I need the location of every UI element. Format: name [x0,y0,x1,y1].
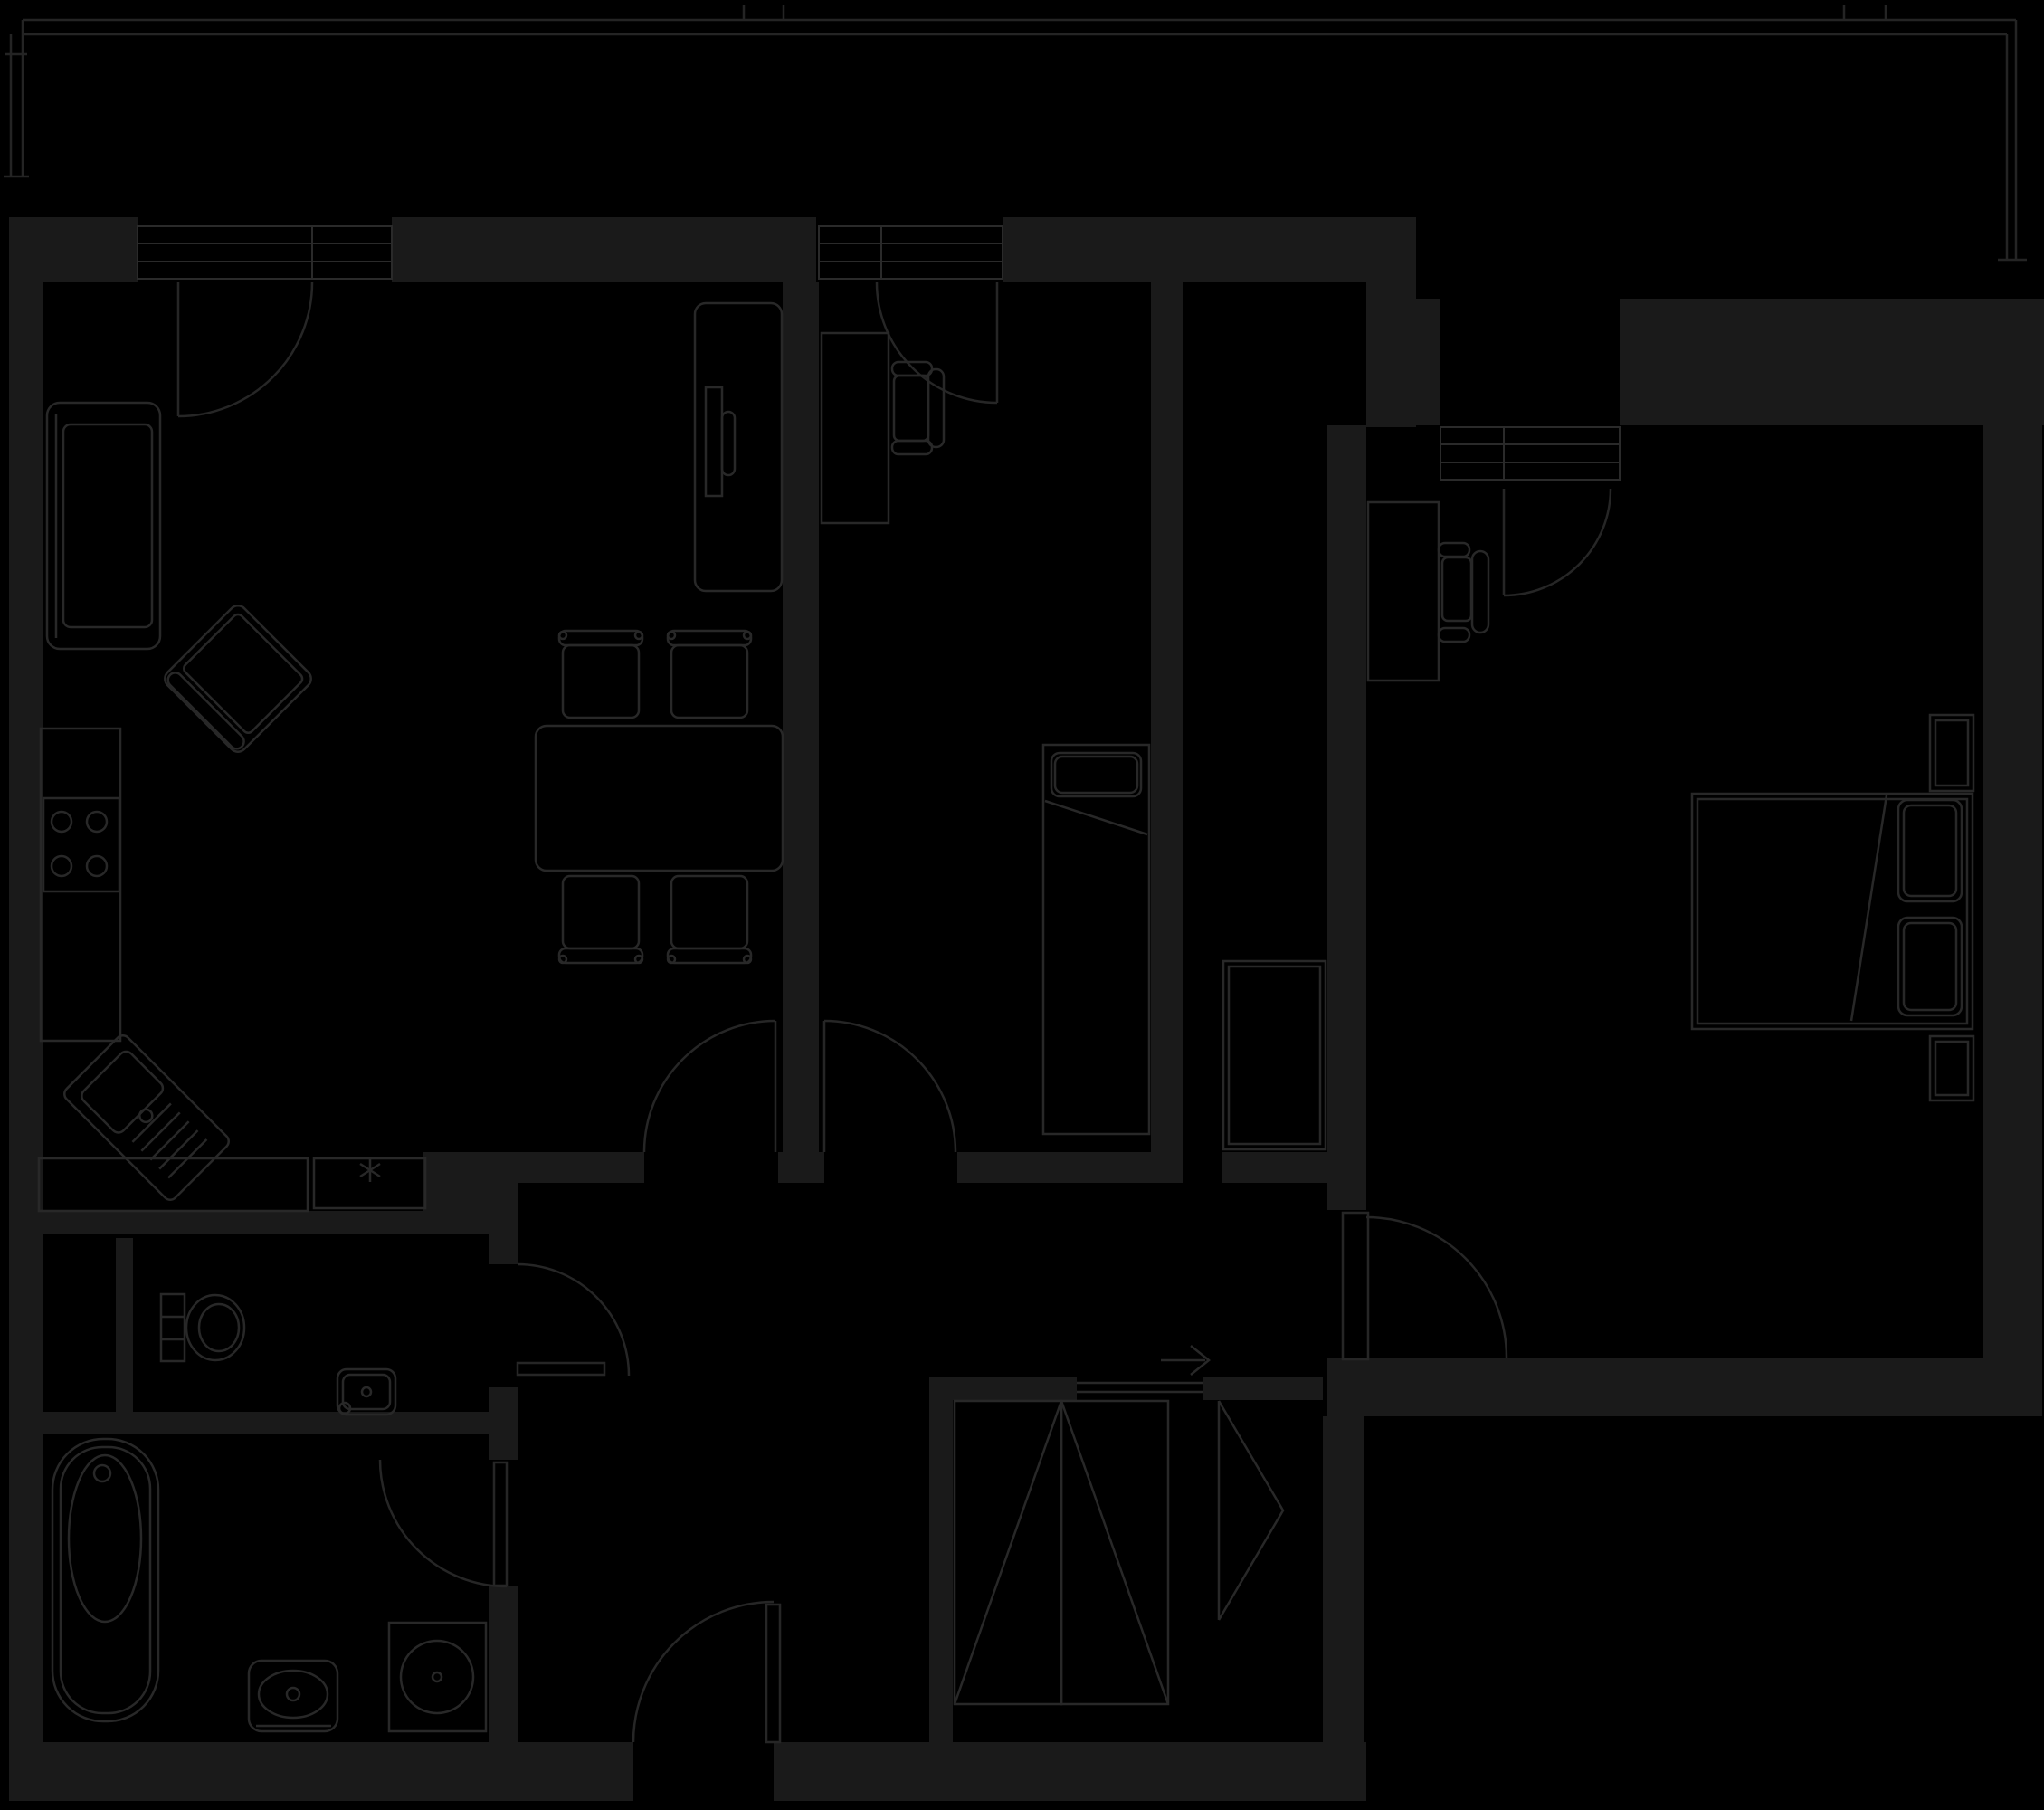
closet-box-1-diag [955,1401,1061,1704]
wc [161,1294,395,1415]
bed2-pillow-a [1898,800,1962,901]
wall-hall-left-a [489,1183,518,1264]
wall-wc-bath-divider [9,1412,493,1434]
wall-wc-closet-divider [116,1238,133,1412]
bed2-nightstand-bottom-inner [1935,1042,1968,1095]
walls [9,217,2044,1801]
stove [43,798,119,891]
door-wc-arc [518,1264,629,1376]
dining-chair-4-back [668,948,751,963]
tv-screen [706,387,722,496]
kitchen-counter-left [41,729,120,1041]
door-bed2-leaf [1343,1213,1368,1359]
door-entry-arc [633,1602,774,1742]
washing-machine-drum [401,1641,473,1713]
dining-chair-1-seat [563,645,639,718]
tv-cabinet [695,303,782,591]
armchair-back [165,670,247,752]
dining-chair-2-dot-a [668,632,675,639]
dining-chair-1-dot-a [559,632,566,639]
bed1-bed [1043,745,1149,1134]
wall-bed1-right [1151,282,1183,1152]
wall-bottom-a [9,1742,633,1801]
dining-chair-3-dot-b [635,956,642,963]
bed2-chair-back [1472,551,1488,633]
bath-sink-drain [287,1688,299,1700]
washing-machine-dot [433,1672,442,1681]
door-bed2-balcony-arc [1504,489,1611,595]
kitchen-counter-bottom [39,1158,308,1211]
bed2-pillow-b [1898,918,1962,1015]
sink-drainer-1 [132,1103,170,1141]
bed2-bed-inner [1697,799,1967,1024]
corridor [1223,961,1326,1149]
bed2-bed [1692,794,1973,1029]
wall-bottom-b [774,1742,1366,1801]
corridor-closet-inner [1229,967,1320,1144]
kitchen [39,729,425,1211]
door-bath-arc [380,1460,507,1586]
dining-chair-4-seat [671,876,747,948]
bed1-chair-back [928,369,944,447]
wall-bed2-left-a [1327,425,1366,1210]
bed1-chair-seat [894,376,928,441]
bed1-chair-arm-b [892,441,932,454]
wall-hall-top-d [1222,1152,1327,1183]
window-living-frame [138,226,392,279]
dining-table [536,726,783,871]
toilet-bowl-inner [199,1304,239,1351]
door-bath-leaf [494,1462,507,1586]
sink-drainer-3 [150,1121,188,1159]
wall-top-b [392,217,816,282]
toilet-tank [161,1294,185,1361]
wall-living-bed1 [783,282,819,1152]
door-wc-leaf [518,1363,604,1375]
bed1-pillow [1051,753,1141,796]
stove-burner-1 [52,812,71,832]
closet-box-2-diag [1061,1401,1168,1704]
door-entry-leaf [766,1605,780,1742]
wall-bed2-top-b [1620,299,2044,425]
stove-burner-3 [52,856,71,876]
dining-chair-2-back [668,631,751,645]
bed2-chair-arm-a [1439,543,1469,557]
bedroom-1 [822,333,1149,1134]
wall-hall-top-c [957,1152,1183,1183]
bed2-nightstand-top-inner [1935,720,1968,786]
dining-chair-4-dot-b [744,956,751,963]
door-living-arc [644,1021,775,1152]
bed2-desk [1368,502,1439,681]
wall-storage-top-b [1203,1377,1323,1400]
stove-burner-4 [87,856,107,876]
wc-sink-inner [343,1375,390,1409]
wall-storage-top-a [929,1377,1077,1400]
dining-chair-2-dot-b [744,632,751,639]
corridor-closet [1223,961,1326,1149]
window-bed2-frame [1440,427,1620,480]
living-room [47,303,783,963]
bathroom [52,1439,486,1731]
wall-hall-top-b [778,1152,824,1183]
bathtub-faucet [94,1465,110,1481]
wall-kitchen-bottom [9,1211,493,1234]
dining-chair-1-dot-b [635,632,642,639]
kitchen-sink-unit [62,1033,232,1203]
wall-bed2-top-a [1366,299,1440,425]
dining-chair-1-back [559,631,642,645]
bed2-pillow-b-inner [1904,923,1956,1010]
bed1-fold-line [1045,801,1147,834]
bedroom-2 [1368,502,1973,1100]
wall-bed2-left-b [1327,1357,1366,1416]
sofa-seat [63,424,152,627]
wall-bed2-bottom [1366,1357,2042,1416]
stove-burner-2 [87,812,107,832]
bed2-pillow-a-inner [1904,805,1956,896]
wall-storage-right [1323,1416,1364,1801]
wall-left-outer [9,217,43,1801]
floor-plan-page [0,0,2044,1810]
wc-sink-drain [362,1387,371,1396]
dining-chair-2-seat [671,645,747,718]
bed2-chair-arm-b [1439,628,1469,642]
wall-right-outer [1983,299,2042,1416]
door-bed1-arc [824,1021,955,1152]
dining-chair-3-seat [563,876,639,948]
bed2-fold-line [1851,795,1887,1021]
tv-stand [722,412,735,475]
sink-drainer-2 [141,1112,179,1150]
wall-hall-left-c [489,1586,518,1742]
wardrobe-chevron [1219,1401,1283,1620]
bath-sink-basin [259,1671,328,1718]
sink-drainer-4 [159,1130,197,1168]
door-living-balcony-arc [178,282,312,416]
floor-plan-canvas [0,0,2044,1810]
wall-storage-left [929,1400,953,1742]
dining-chair-3-back [559,948,642,963]
door-bed2-arc [1366,1217,1507,1357]
dining-chair-4-dot-a [668,956,675,963]
washing-machine [389,1623,486,1731]
window-bed1-frame [819,226,1003,279]
dining-chair-3-dot-a [559,956,566,963]
wall-top-c [1003,217,1416,282]
bed2-chair-seat [1442,557,1471,621]
bed1-pillow-inner [1055,757,1137,793]
bed1-desk [822,333,889,523]
